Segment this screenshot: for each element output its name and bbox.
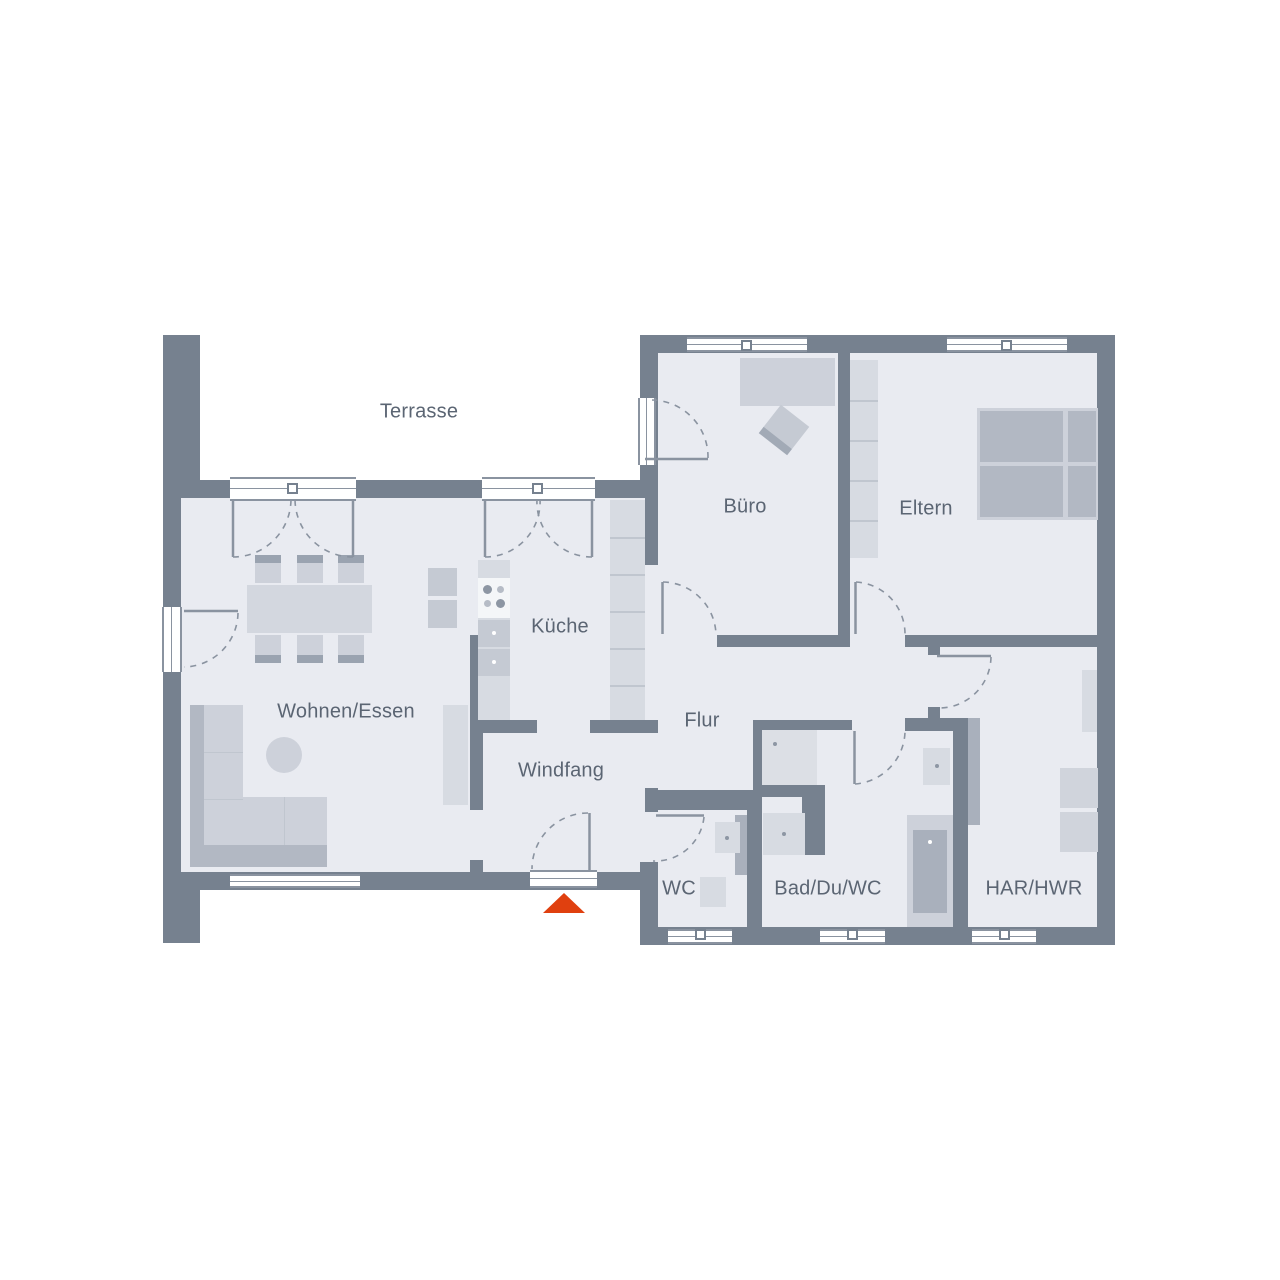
toilet-detail <box>935 764 939 768</box>
sofa-seam <box>204 752 243 753</box>
stove <box>478 578 510 618</box>
door-handle <box>532 483 543 494</box>
room-label-wc: WC <box>662 878 696 901</box>
window-handle <box>741 340 752 351</box>
wardrobe-body <box>850 360 878 558</box>
har-shelf <box>1082 670 1097 732</box>
wall-eltern-bottom <box>905 635 1097 647</box>
room-label-wohnen-essen: Wohnen/Essen <box>277 701 415 724</box>
wardrobe-seam <box>850 400 878 402</box>
wall-kueche-bottom-left <box>483 720 537 733</box>
wall-terrace-left <box>163 335 200 482</box>
room-label-har-hwr: HAR/HWR <box>986 878 1083 901</box>
room-label-eltern: Eltern <box>899 498 952 521</box>
room-label-terrasse: Terrasse <box>380 401 458 424</box>
wall-right <box>1097 335 1115 945</box>
counter-seam <box>610 685 645 687</box>
window-handle <box>1001 340 1012 351</box>
room-label-bad-du-wc: Bad/Du/WC <box>774 878 881 901</box>
terrace-door-buero <box>638 398 656 465</box>
wall-wc-bad <box>747 797 762 927</box>
sofa-seat <box>204 705 243 845</box>
washing-machine <box>1060 768 1098 808</box>
oven-handle <box>492 660 496 664</box>
room-label-kueche: Küche <box>531 616 589 639</box>
entrance-arrow-icon <box>543 893 585 913</box>
door-handle <box>287 483 298 494</box>
window-handle <box>847 929 858 940</box>
room-label-windfang: Windfang <box>518 760 604 783</box>
burner <box>483 585 492 594</box>
chair-backrest <box>255 655 281 663</box>
sofa-seam <box>204 799 243 800</box>
window-handle <box>999 929 1010 940</box>
dining-table <box>247 585 372 633</box>
chair-backrest <box>338 555 364 563</box>
sofa-seam <box>284 797 285 845</box>
counter-seam <box>610 611 645 613</box>
wall-har-door-jamb-top <box>928 647 940 655</box>
wc-basin-tap <box>725 836 729 840</box>
bed-mattress <box>980 411 1063 462</box>
bed-pillow <box>1068 466 1096 517</box>
wardrobe-seam <box>850 480 878 482</box>
wall-kueche-bottom-right <box>590 720 658 733</box>
counter-seam <box>610 537 645 539</box>
wall-bottom-left-stub <box>163 890 200 943</box>
side-door-wohnen <box>162 607 182 672</box>
chair-backrest <box>297 655 323 663</box>
entrance-door-threshold <box>530 870 597 888</box>
burner <box>484 600 491 607</box>
window-handle <box>695 929 706 940</box>
coffee-table <box>266 737 302 773</box>
burner <box>496 599 505 608</box>
wall-windfang-wc-lower <box>640 862 658 927</box>
wall-shower-bottom <box>762 785 825 797</box>
wc-toilet <box>700 877 726 907</box>
chair-backrest <box>297 555 323 563</box>
wall-buero-bottom <box>717 635 838 647</box>
wall-har-door-jamb-bottom <box>928 707 940 718</box>
counter-seam <box>610 574 645 576</box>
duct-har <box>968 718 980 825</box>
wall-windfang-wc-upper <box>645 788 658 812</box>
basin-tap <box>782 832 786 836</box>
wall-shower-top <box>753 720 852 730</box>
wall-windfang-left-stub <box>470 860 483 872</box>
wall-bad-right <box>953 718 968 927</box>
wall-wc-top <box>645 790 762 810</box>
window-wohnen <box>230 874 360 888</box>
bed-mattress <box>980 466 1063 517</box>
desk <box>740 358 835 406</box>
chair-backrest <box>255 555 281 563</box>
wardrobe-seam <box>850 440 878 442</box>
bed-pillow <box>1068 411 1096 462</box>
floor-plan-canvas: Terrasse Büro Eltern Küche Wohnen/Essen … <box>0 0 1280 1280</box>
dryer <box>1060 812 1098 852</box>
wall-left <box>163 498 181 872</box>
kitchen-island-unit <box>428 568 457 596</box>
bathtub-drain <box>928 840 932 844</box>
counter <box>610 500 645 720</box>
counter-seam <box>610 648 645 650</box>
shower-tray <box>762 730 817 785</box>
sofa-seat <box>243 797 327 845</box>
burner <box>497 586 504 593</box>
shower-drain <box>773 742 777 746</box>
kitchen-island-unit <box>428 600 457 628</box>
wall-shower-left <box>753 720 762 797</box>
wall-kueche-flur-upper <box>645 498 658 565</box>
wall-basin-pillar <box>802 797 825 855</box>
room-label-flur: Flur <box>684 710 719 733</box>
room-label-buero: Büro <box>723 496 766 519</box>
chair-backrest <box>338 655 364 663</box>
wall-buero-eltern <box>838 353 850 647</box>
wardrobe-seam <box>850 520 878 522</box>
oven-handle <box>492 631 496 635</box>
windfang-cabinet <box>443 705 468 805</box>
